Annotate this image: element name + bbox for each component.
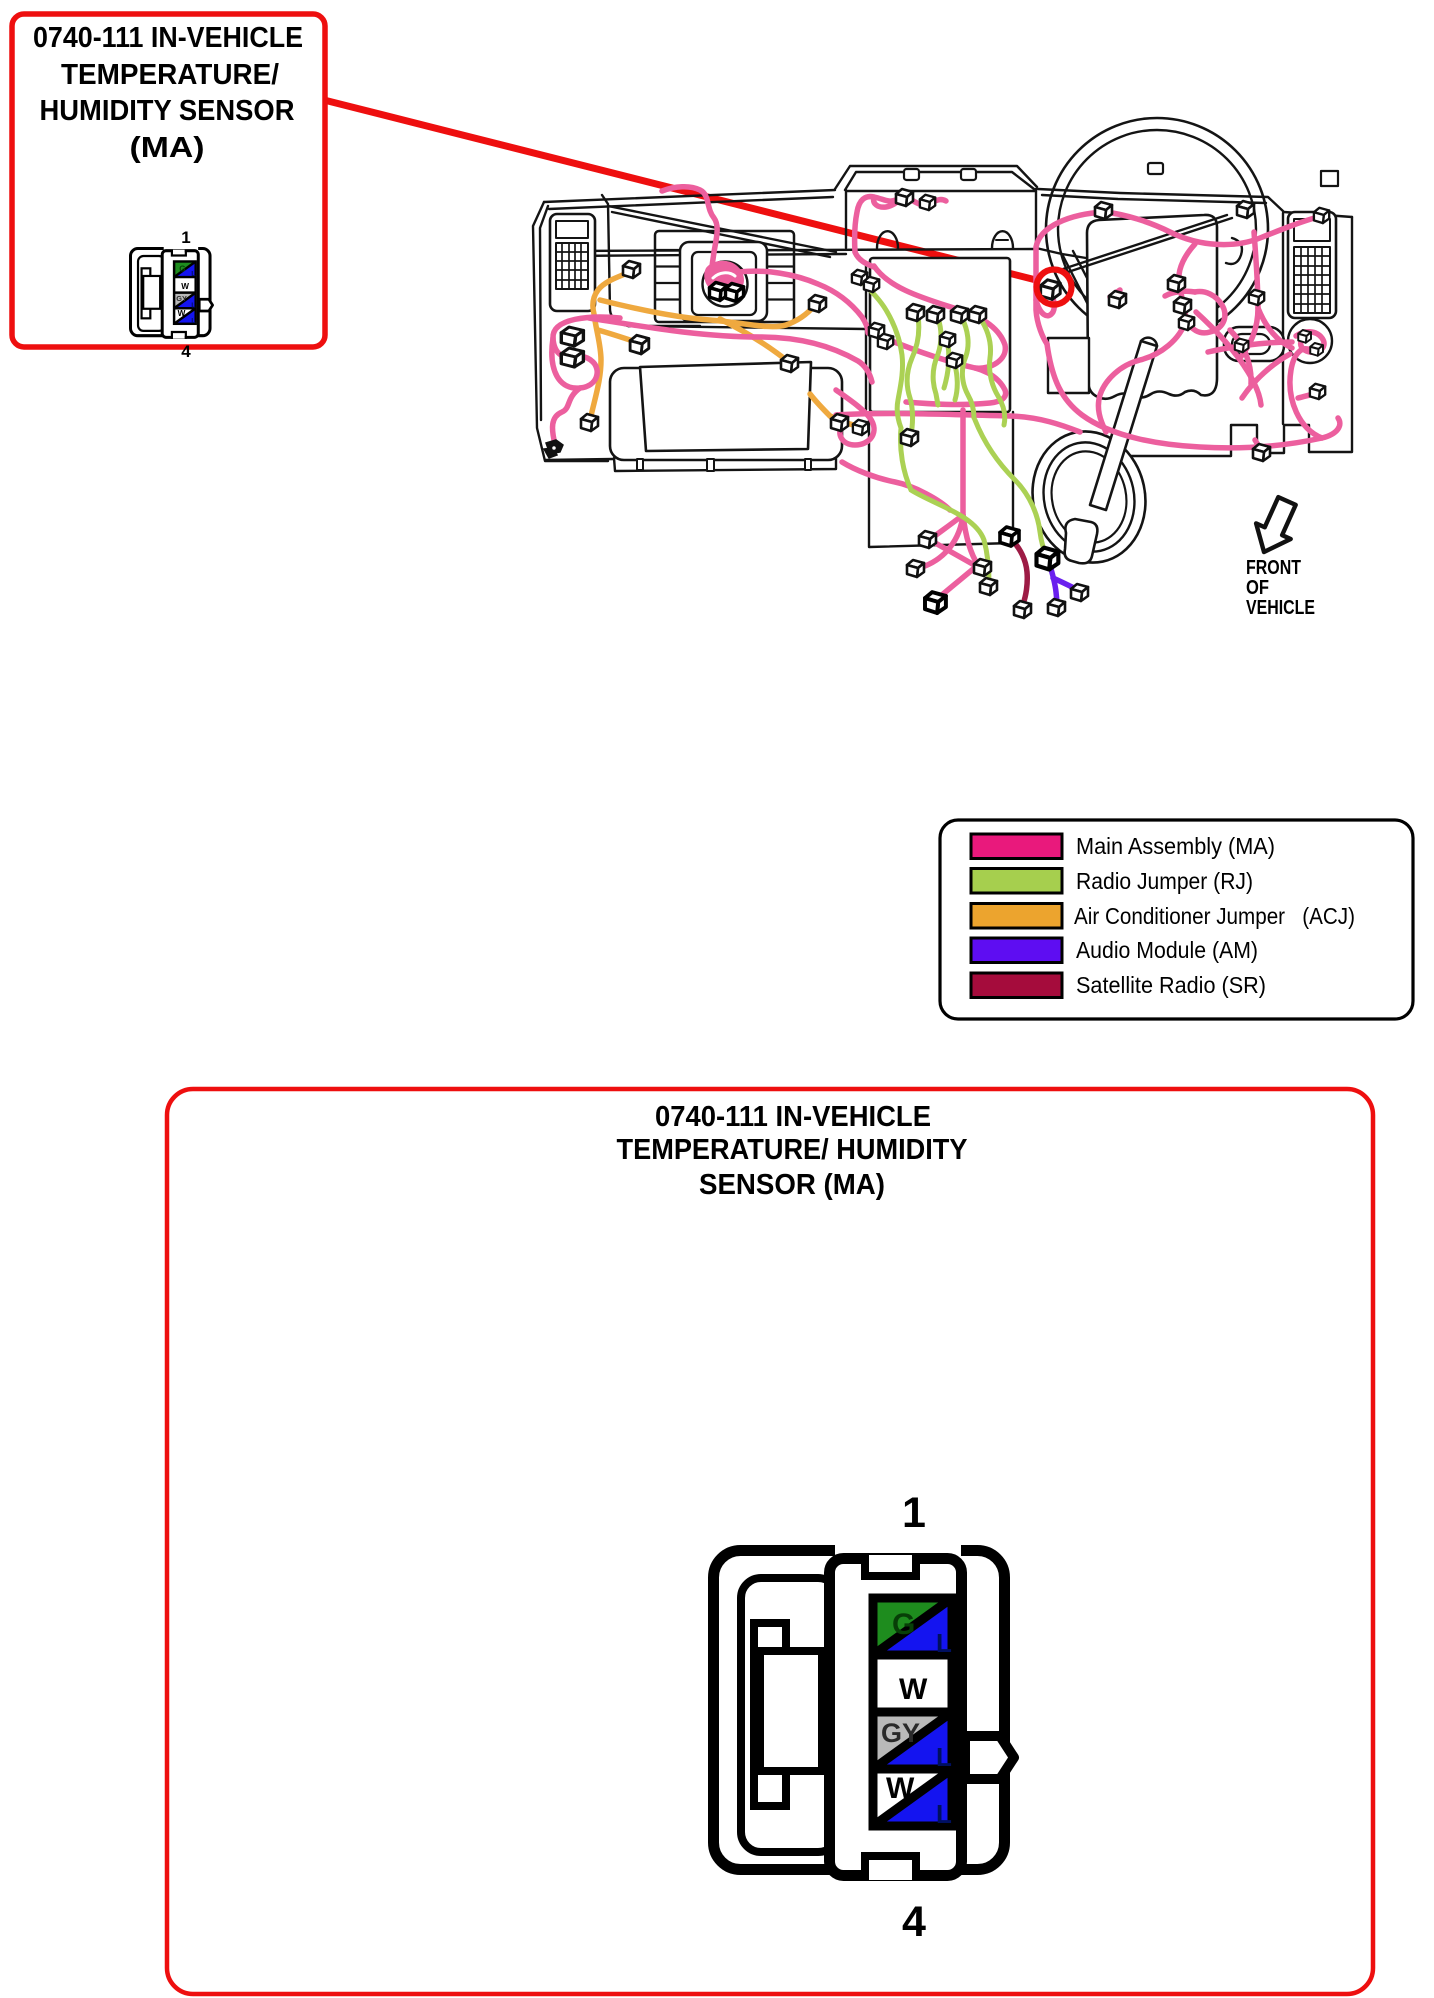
svg-text:4: 4 bbox=[902, 1898, 926, 1946]
svg-text:Air Conditioner Jumper (ACJ): Air Conditioner Jumper (ACJ) bbox=[1074, 903, 1355, 929]
svg-text:0740-111 IN-VEHICLE: 0740-111 IN-VEHICLE bbox=[655, 1101, 931, 1133]
svg-text:(MA): (MA) bbox=[130, 132, 205, 164]
svg-text:4: 4 bbox=[181, 342, 191, 361]
svg-text:1: 1 bbox=[902, 1489, 926, 1537]
svg-text:Satellite Radio (SR): Satellite Radio (SR) bbox=[1076, 972, 1266, 998]
svg-text:HUMIDITY SENSOR: HUMIDITY SENSOR bbox=[40, 95, 295, 127]
svg-text:FRONT: FRONT bbox=[1246, 557, 1301, 579]
svg-text:SENSOR (MA): SENSOR (MA) bbox=[699, 1169, 885, 1201]
svg-text:OF: OF bbox=[1246, 577, 1269, 599]
svg-text:Audio Module (AM): Audio Module (AM) bbox=[1076, 937, 1258, 963]
svg-text:TEMPERATURE/: TEMPERATURE/ bbox=[61, 59, 279, 91]
svg-text:VEHICLE: VEHICLE bbox=[1246, 597, 1315, 619]
svg-text:1: 1 bbox=[181, 228, 190, 247]
svg-text:TEMPERATURE/ HUMIDITY: TEMPERATURE/ HUMIDITY bbox=[617, 1134, 968, 1166]
svg-text:Radio Jumper (RJ): Radio Jumper (RJ) bbox=[1076, 868, 1253, 894]
svg-text:Main Assembly (MA): Main Assembly (MA) bbox=[1076, 833, 1275, 859]
svg-text:0740-111 IN-VEHICLE: 0740-111 IN-VEHICLE bbox=[33, 22, 303, 54]
